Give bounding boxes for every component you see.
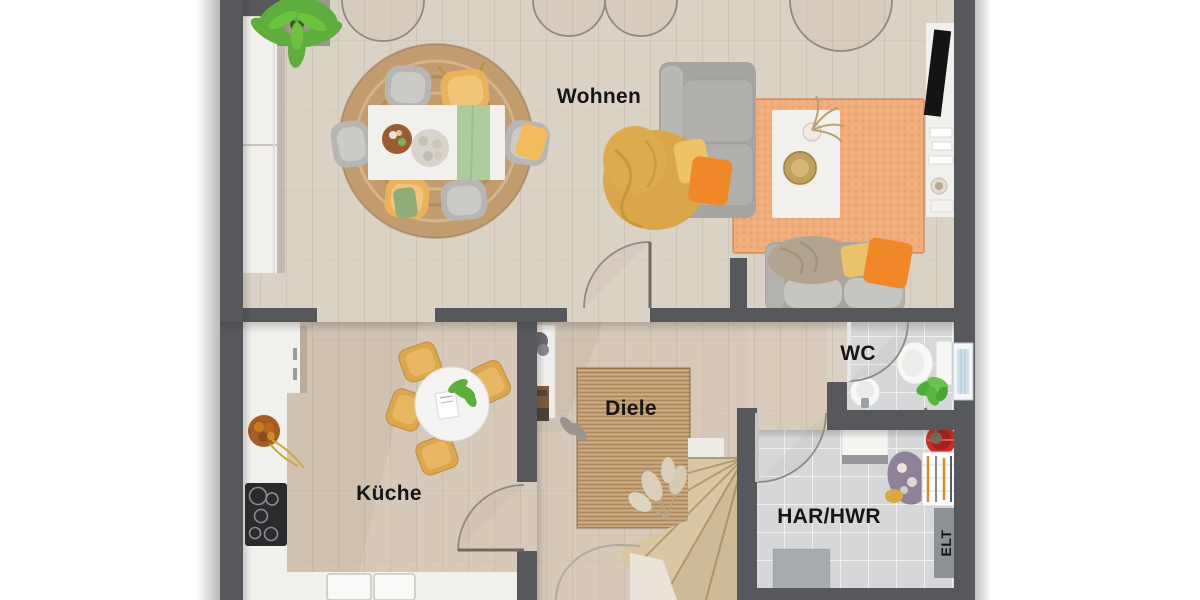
room-label-wohnen: Wohnen <box>557 85 641 108</box>
vase <box>803 123 821 141</box>
flower-centerpiece <box>411 129 449 167</box>
margin-left <box>0 0 196 600</box>
orange-pillow <box>862 237 913 290</box>
wall-left-outer <box>220 0 243 600</box>
room-label-kueche: Küche <box>356 482 422 505</box>
room-label-har-hwr: HAR/HWR <box>777 505 881 528</box>
wc-radiator <box>953 343 973 400</box>
room-label-elt: ELT <box>938 530 954 557</box>
wall-right-outer <box>954 0 975 600</box>
wall-kitchen-hall-lower <box>517 551 537 600</box>
floor-plan-canvas: Wohnen Küche Diele WC HAR/HWR ELT <box>0 0 1200 600</box>
green-napkin <box>393 186 419 219</box>
margin-right-shadow <box>975 0 991 600</box>
wall-mid-c <box>650 308 955 322</box>
wall-mid-b <box>435 308 567 322</box>
orange-pillow <box>687 155 733 206</box>
tool-shelf <box>922 452 958 506</box>
wall-mid-a <box>220 308 317 322</box>
dining-chair-gray-southeast <box>439 178 488 222</box>
wall-stub-up <box>730 258 747 310</box>
wall-kitchen-hall-upper <box>517 322 537 482</box>
dining-chair-gray-west <box>329 119 373 170</box>
media-item <box>930 128 952 137</box>
tv-sideboard <box>924 23 958 217</box>
wall-wc-har-band <box>827 410 955 430</box>
margin-right <box>991 0 1200 600</box>
wall-har-left <box>737 408 757 600</box>
floor-plan-page: Wohnen Küche Diele WC HAR/HWR ELT <box>0 0 1200 600</box>
dining-chair-gray-east <box>502 118 552 168</box>
gray-storage-box <box>773 549 830 589</box>
wall-wc-left <box>827 382 847 410</box>
room-label-diele: Diele <box>605 397 657 420</box>
media-item <box>929 156 953 164</box>
margin-left-shadow <box>196 0 220 600</box>
fruit-bowl-centerpiece <box>382 124 412 154</box>
book-stack <box>931 200 953 212</box>
media-item <box>932 142 952 150</box>
menu-card <box>435 391 458 420</box>
sink-basin <box>374 574 415 600</box>
room-label-wc: WC <box>840 342 876 365</box>
sink-basin <box>327 574 371 600</box>
wall-har-bottom <box>757 588 975 600</box>
coffee-table <box>772 96 844 218</box>
sofa-bottom <box>765 236 914 312</box>
dining-chair-gray-north <box>384 65 432 109</box>
